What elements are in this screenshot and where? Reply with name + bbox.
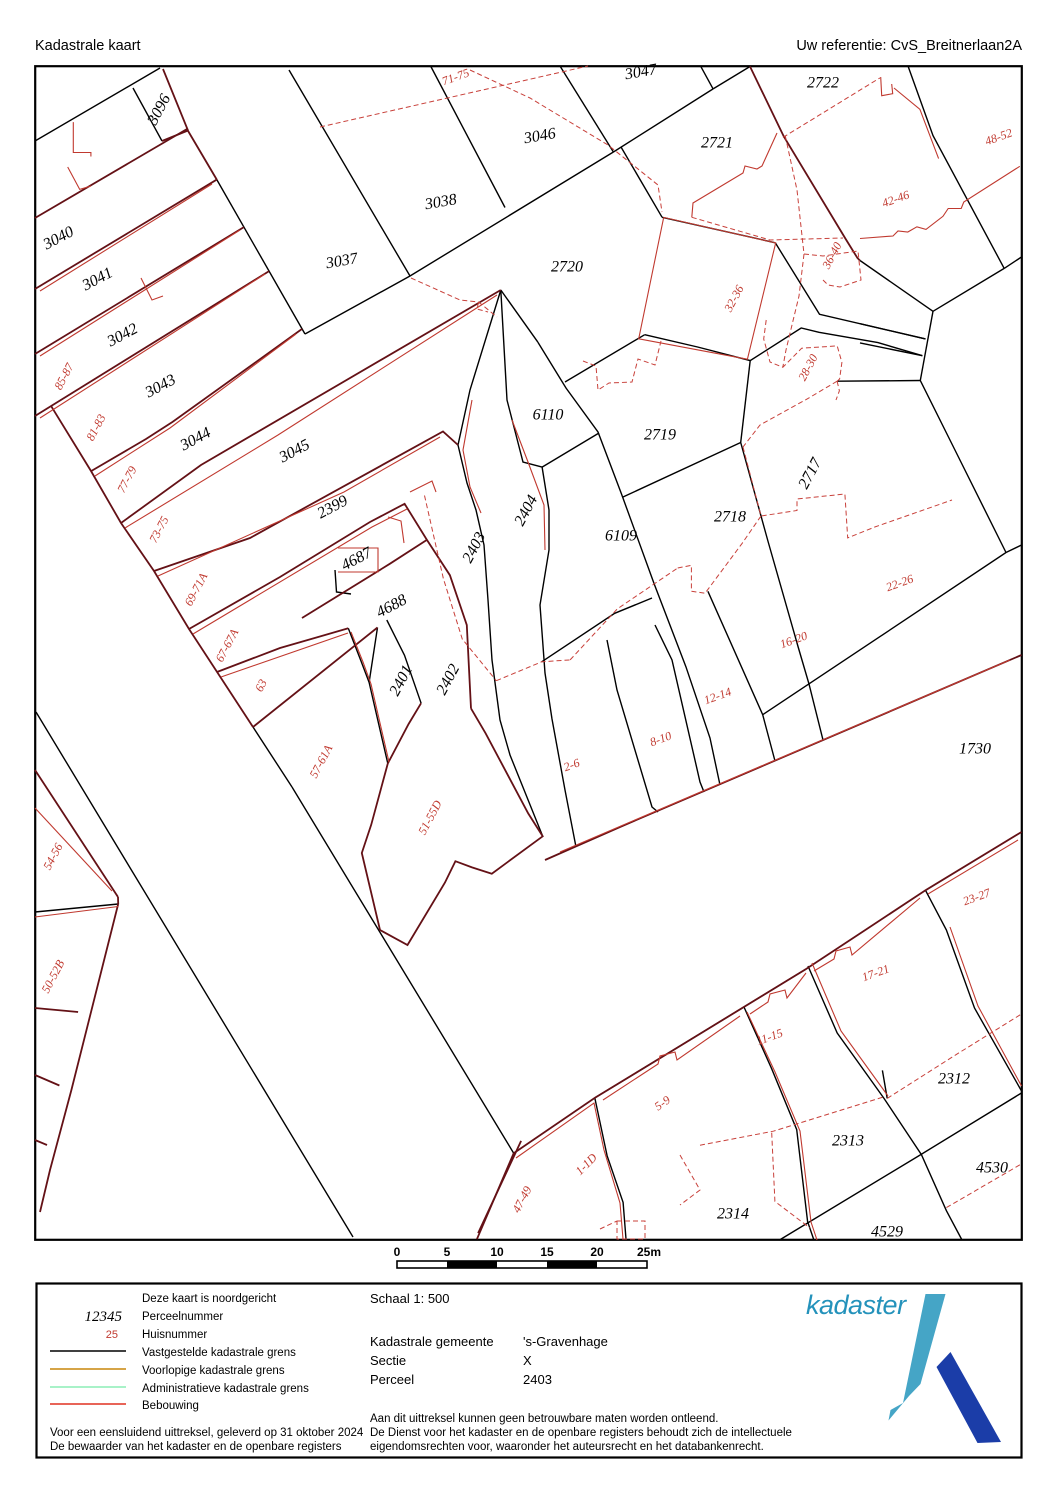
svg-text:Perceelnummer: Perceelnummer [142, 1311, 223, 1323]
svg-text:67-67A: 67-67A [212, 626, 241, 664]
svg-text:Bebouwing: Bebouwing [142, 1400, 199, 1412]
svg-text:11-15: 11-15 [754, 1026, 784, 1048]
svg-text:X: X [523, 1353, 532, 1368]
svg-text:48-52: 48-52 [983, 125, 1014, 148]
svg-text:5-9: 5-9 [652, 1093, 673, 1114]
svg-text:17-21: 17-21 [860, 961, 891, 984]
svg-text:6110: 6110 [533, 407, 564, 424]
svg-text:51-55D: 51-55D [415, 798, 445, 837]
svg-text:Huisnummer: Huisnummer [142, 1329, 207, 1341]
svg-text:2402: 2402 [433, 661, 463, 697]
svg-text:57-61A: 57-61A [306, 742, 335, 780]
svg-text:4529: 4529 [871, 1224, 903, 1241]
svg-text:25m: 25m [637, 1245, 661, 1259]
svg-text:16-20: 16-20 [778, 628, 809, 651]
svg-text:2313: 2313 [832, 1133, 864, 1150]
svg-text:3044: 3044 [177, 424, 214, 455]
svg-text:23-27: 23-27 [961, 885, 993, 908]
svg-text:3043: 3043 [142, 371, 179, 402]
svg-text:2717: 2717 [795, 455, 826, 492]
svg-text:3046: 3046 [522, 125, 557, 147]
svg-text:77-79: 77-79 [114, 464, 140, 495]
svg-text:4688: 4688 [373, 591, 409, 621]
svg-text:Sectie: Sectie [370, 1353, 406, 1368]
svg-text:3040: 3040 [40, 223, 77, 254]
svg-text:2404: 2404 [511, 492, 541, 528]
svg-text:2399: 2399 [314, 492, 350, 522]
svg-text:15: 15 [540, 1245, 554, 1259]
svg-text:kadaster: kadaster [806, 1290, 907, 1320]
svg-text:2-6: 2-6 [562, 756, 582, 775]
svg-text:3047: 3047 [623, 61, 659, 84]
svg-text:2403: 2403 [523, 1372, 552, 1387]
svg-text:54-56: 54-56 [40, 841, 66, 872]
svg-text:10: 10 [490, 1245, 504, 1259]
svg-text:20: 20 [590, 1245, 604, 1259]
svg-text:eigendomsrechten voor, waarond: eigendomsrechten voor, waaronder het aut… [370, 1441, 764, 1453]
svg-text:22-26: 22-26 [884, 571, 915, 594]
svg-text:3096: 3096 [144, 91, 175, 128]
svg-text:Schaal 1: 500: Schaal 1: 500 [370, 1291, 450, 1306]
svg-text:3038: 3038 [423, 191, 458, 213]
svg-text:Aan dit uittreksel kunnen geen: Aan dit uittreksel kunnen geen betrouwba… [370, 1413, 718, 1425]
svg-text:71-75: 71-75 [440, 65, 471, 88]
svg-text:De Dienst voor het kadaster en: De Dienst voor het kadaster en de openba… [370, 1427, 792, 1439]
svg-text:28-30: 28-30 [795, 352, 821, 383]
svg-text:2314: 2314 [717, 1206, 749, 1223]
svg-text:3045: 3045 [276, 436, 313, 467]
svg-text:'s-Gravenhage: 's-Gravenhage [523, 1334, 608, 1349]
svg-text:Kadastrale kaart: Kadastrale kaart [35, 38, 141, 54]
svg-text:73-75: 73-75 [146, 514, 172, 545]
svg-text:2401: 2401 [386, 662, 416, 698]
svg-text:Kadastrale gemeente: Kadastrale gemeente [370, 1334, 494, 1349]
svg-text:2722: 2722 [807, 75, 839, 92]
svg-text:5: 5 [444, 1245, 451, 1259]
svg-text:De bewaarder van het kadaster: De bewaarder van het kadaster en de open… [50, 1441, 342, 1453]
svg-text:1-1D: 1-1D [572, 1150, 600, 1178]
svg-text:50-52B: 50-52B [38, 957, 67, 995]
svg-text:3041: 3041 [79, 264, 116, 295]
svg-text:2719: 2719 [644, 427, 676, 444]
svg-text:Deze kaart is noordgericht: Deze kaart is noordgericht [142, 1293, 277, 1305]
svg-text:12-14: 12-14 [702, 684, 733, 707]
svg-text:32-36: 32-36 [721, 283, 747, 315]
svg-text:63: 63 [252, 677, 270, 694]
svg-text:Vastgestelde kadastrale grens: Vastgestelde kadastrale grens [142, 1347, 296, 1359]
svg-text:Perceel: Perceel [370, 1372, 414, 1387]
svg-text:8-10: 8-10 [648, 728, 673, 749]
svg-text:2312: 2312 [938, 1071, 970, 1088]
svg-text:6109: 6109 [605, 528, 637, 545]
svg-text:Voorlopige kadastrale grens: Voorlopige kadastrale grens [142, 1365, 285, 1377]
svg-text:2720: 2720 [551, 259, 583, 276]
svg-text:47-49: 47-49 [509, 1184, 535, 1215]
svg-text:Administratieve kadastrale gre: Administratieve kadastrale grens [142, 1383, 309, 1395]
svg-text:69-71A: 69-71A [181, 570, 210, 608]
svg-text:Voor een eensluidend uittrekse: Voor een eensluidend uittreksel, gelever… [50, 1427, 364, 1439]
svg-text:2721: 2721 [701, 135, 733, 152]
svg-text:Uw referentie: CvS_Breitnerlaa: Uw referentie: CvS_Breitnerlaan2A [796, 38, 1022, 54]
svg-text:3037: 3037 [324, 250, 360, 273]
svg-text:1730: 1730 [959, 741, 991, 758]
svg-text:81-83: 81-83 [83, 412, 109, 443]
svg-text:2718: 2718 [714, 509, 746, 526]
svg-text:85-87: 85-87 [51, 360, 77, 392]
svg-text:4530: 4530 [976, 1160, 1008, 1177]
svg-text:25: 25 [106, 1329, 118, 1341]
svg-text:42-46: 42-46 [880, 187, 911, 210]
svg-text:0: 0 [394, 1245, 401, 1259]
svg-text:12345: 12345 [85, 1309, 123, 1325]
svg-text:3042: 3042 [104, 320, 141, 351]
